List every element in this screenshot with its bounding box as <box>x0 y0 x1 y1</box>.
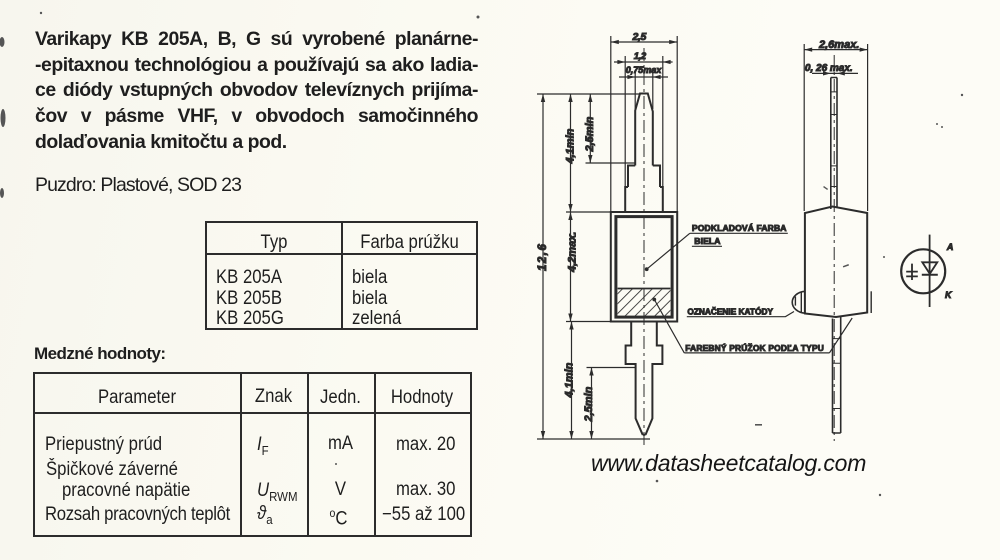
svg-text:2,5min: 2,5min <box>584 116 596 152</box>
svg-text:K: K <box>945 290 953 300</box>
svg-text:PODKLADOVÁ FARBA: PODKLADOVÁ FARBA <box>692 223 787 233</box>
svg-text:0, 26 max.: 0, 26 max. <box>805 63 853 74</box>
svg-text:1,2: 1,2 <box>634 51 647 62</box>
svg-text:4,2max.: 4,2max. <box>567 232 579 273</box>
svg-text:A: A <box>946 242 954 252</box>
svg-text:OZNAČENIE KATÓDY: OZNAČENIE KATÓDY <box>687 306 773 317</box>
svg-text:4,1min: 4,1min <box>564 362 576 398</box>
svg-text:4,1min: 4,1min <box>565 128 577 164</box>
svg-text:0,75max: 0,75max <box>626 65 663 75</box>
svg-text:12,6: 12,6 <box>537 243 549 271</box>
svg-text:BIELA: BIELA <box>694 236 720 246</box>
svg-text:2,5: 2,5 <box>632 31 647 43</box>
svg-text:2,6max.: 2,6max. <box>818 39 859 51</box>
svg-text:2,5min: 2,5min <box>583 386 595 422</box>
svg-text:FAREBNÝ PRÚŽOK PODĽA TYPU: FAREBNÝ PRÚŽOK PODĽA TYPU <box>685 342 824 353</box>
